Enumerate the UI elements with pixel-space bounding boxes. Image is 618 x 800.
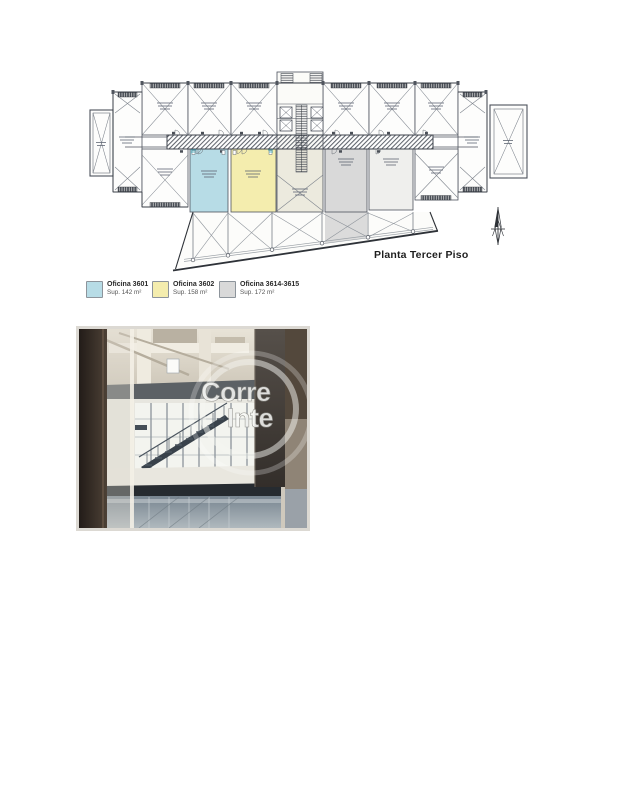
floor-plan-drawing: [80, 60, 540, 275]
property-photo: Corre Inte: [76, 326, 310, 531]
legend-area: Sup. 142 m²: [107, 290, 148, 296]
legend-area: Sup. 158 m²: [173, 290, 214, 296]
legend-swatch-blue: [86, 281, 103, 298]
legend-label: Oficina 3602: [173, 281, 214, 288]
terrace-structure: [173, 212, 438, 271]
legend-item-oficina-3601: Oficina 3601 Sup. 142 m²: [86, 281, 148, 298]
page: Planta Tercer Piso Oficina 3601 Sup. 142…: [0, 0, 618, 800]
legend-swatch-gray: [219, 281, 236, 298]
room-oficina-3602: [231, 149, 276, 212]
floor-plan-title: Planta Tercer Piso: [374, 249, 468, 261]
north-arrow-icon: [491, 207, 505, 245]
room-oficina-3601: [190, 149, 228, 212]
room-oficina-3614: [325, 149, 367, 212]
legend-item-oficina-3614-3615: Oficina 3614-3615 Sup. 172 m²: [219, 281, 299, 298]
interior-lobby-photo: Corre Inte: [79, 329, 307, 528]
legend-label: Oficina 3601: [107, 281, 148, 288]
legend-item-oficina-3602: Oficina 3602 Sup. 158 m²: [152, 281, 214, 298]
legend-swatch-yellow: [152, 281, 169, 298]
legend-area: Sup. 172 m²: [240, 290, 299, 296]
watermark-text-line2: Inte: [227, 403, 273, 433]
legend-label: Oficina 3614-3615: [240, 281, 299, 288]
